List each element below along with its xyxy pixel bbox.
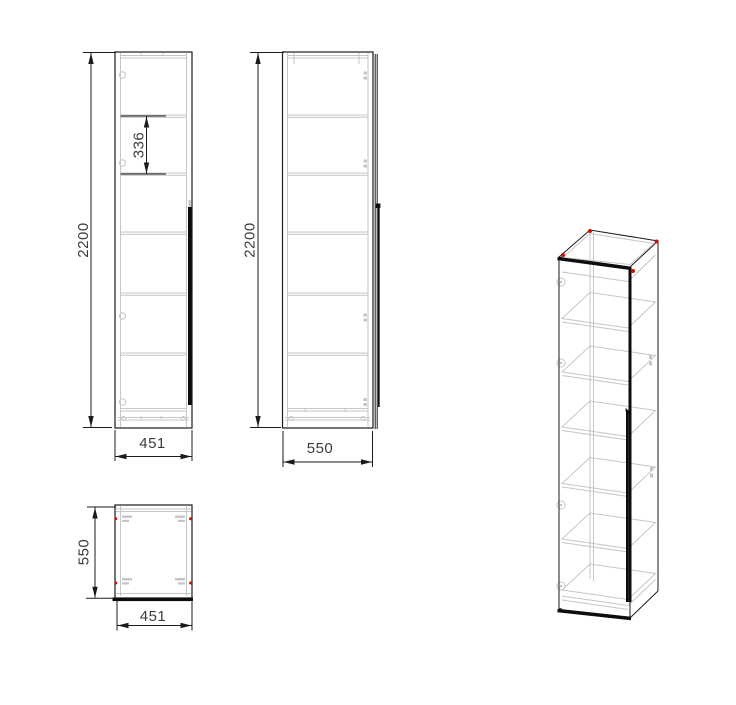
fitting-marker <box>114 582 117 585</box>
side-door-panel <box>375 54 377 429</box>
plan-corner-fittings <box>114 516 192 585</box>
front-height-dimension: 2200 <box>75 53 116 428</box>
side-depth-dimension: 550 <box>283 431 373 467</box>
front-view: 2200 336 451 <box>75 52 192 461</box>
fitting-marker <box>114 517 117 520</box>
side-view: 2200 550 <box>242 52 381 467</box>
front-height-label: 2200 <box>75 222 92 257</box>
front-shelf-pitch-label: 336 <box>131 132 148 159</box>
side-height-dimension: 2200 <box>242 53 285 428</box>
plan-width-label: 451 <box>140 608 167 625</box>
iso-view <box>557 229 659 619</box>
technical-drawing-canvas: 2200 336 451 <box>0 0 736 705</box>
side-depth-label: 550 <box>307 440 334 457</box>
iso-base <box>562 564 656 610</box>
side-height-label: 2200 <box>242 222 259 257</box>
front-shelf-pitch-dimension: 336 <box>121 116 167 174</box>
side-shelves <box>288 115 368 355</box>
iso-carcass-outline <box>559 230 658 618</box>
front-width-dimension: 451 <box>115 430 192 461</box>
fitting-marker <box>655 240 659 244</box>
plan-width-dimension: 451 <box>117 600 192 631</box>
front-width-label: 451 <box>139 435 166 452</box>
drawing-svg: 2200 336 451 <box>0 0 736 705</box>
iso-shelves <box>562 293 656 553</box>
fitting-marker <box>588 229 592 233</box>
front-base <box>118 409 189 421</box>
side-base <box>285 409 370 421</box>
plan-depth-dimension: 550 <box>76 507 117 598</box>
fitting-marker <box>189 517 192 520</box>
fitting-marker <box>631 269 635 273</box>
plan-door-front <box>113 598 194 602</box>
plan-view: 550 451 <box>76 505 194 631</box>
front-door-handle <box>188 207 192 405</box>
side-door-handle <box>376 204 381 408</box>
fitting-marker <box>189 582 192 585</box>
side-hinge-marks <box>364 72 368 407</box>
fitting-marker <box>561 253 565 257</box>
plan-depth-label: 550 <box>76 539 93 566</box>
iso-interior <box>557 230 656 610</box>
front-carcass-outline <box>115 52 192 428</box>
side-carcass-outline <box>283 52 374 428</box>
